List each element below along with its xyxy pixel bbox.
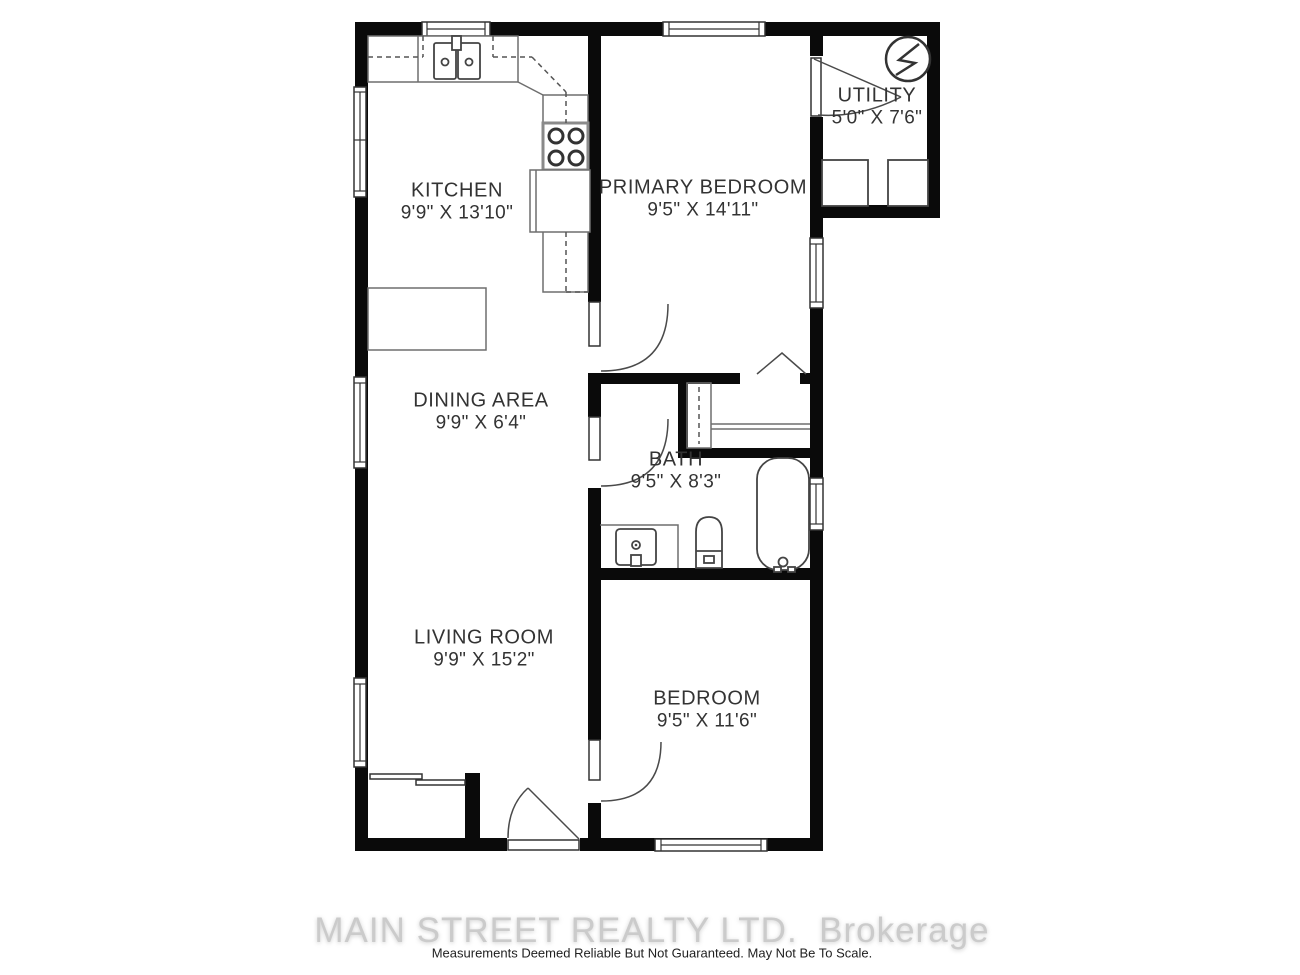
washer-icon: [822, 160, 868, 206]
bath-dims: 9'5" X 8'3": [631, 472, 722, 494]
primary-bedroom-dims: 9'5" X 14'11": [599, 200, 807, 222]
primary-bedroom-door: [588, 302, 668, 373]
front-door: [507, 788, 580, 851]
wall-right: [810, 22, 823, 851]
wall-primarybed-bath: [588, 373, 740, 384]
bath-name: BATH: [631, 449, 722, 472]
window-primary-bedroom-top: [663, 22, 765, 36]
dining-dims: 9'9" X 6'4": [413, 413, 549, 435]
entry-closet-sliding-door: [370, 774, 465, 785]
bedroom-name: BEDROOM: [653, 688, 761, 711]
window-dining-left: [354, 377, 366, 468]
primary-bedroom-name: PRIMARY BEDROOM: [599, 177, 807, 200]
utility-name: UTILITY: [832, 85, 923, 108]
living-room-label: LIVING ROOM 9'9" X 15'2": [414, 627, 554, 672]
bedroom-label: BEDROOM 9'5" X 11'6": [653, 688, 761, 733]
kitchen-peninsula: [368, 288, 486, 350]
living-room-dims: 9'9" X 15'2": [414, 650, 554, 672]
window-bedroom-bottom: [655, 839, 767, 851]
measurements-disclaimer: Measurements Deemed Reliable But Not Gua…: [432, 946, 873, 961]
bath-label: BATH 9'5" X 8'3": [631, 449, 722, 494]
walls: [355, 22, 940, 851]
kitchen-counter-corner: [518, 82, 543, 95]
kitchen-name: KITCHEN: [401, 180, 514, 203]
floor-plan-page: KITCHEN 9'9" X 13'10" PRIMARY BEDROOM 9'…: [0, 0, 1300, 975]
primary-bedroom-label: PRIMARY BEDROOM 9'5" X 14'11": [599, 177, 807, 222]
wall-closet-stub: [800, 373, 810, 384]
window-living-left: [354, 678, 366, 767]
primary-closet: [687, 383, 810, 448]
window-bath-right: [810, 478, 823, 530]
utility-label: UTILITY 5'0" X 7'6": [832, 85, 923, 130]
living-room-name: LIVING ROOM: [414, 627, 554, 650]
closet-bifold-door: [757, 353, 806, 374]
window-kitchen-top: [422, 22, 490, 36]
bathtub-icon: [757, 458, 809, 572]
stove-icon: [543, 123, 588, 170]
bathroom-sink-icon: [616, 529, 656, 566]
toilet-icon: [696, 517, 722, 568]
dining-name: DINING AREA: [413, 390, 549, 413]
dining-label: DINING AREA 9'9" X 6'4": [413, 390, 549, 435]
dryer-icon: [888, 160, 928, 206]
utility-dims: 5'0" X 7'6": [832, 108, 923, 130]
electrical-panel-icon: [886, 37, 930, 81]
kitchen-dims: 9'9" X 13'10": [401, 203, 514, 225]
wall-entry-closet-right: [465, 773, 480, 850]
bedroom-door: [588, 740, 661, 803]
wall-utility-bottom: [810, 205, 940, 218]
refrigerator-icon: [530, 170, 590, 232]
kitchen-label: KITCHEN 9'9" X 13'10": [401, 180, 514, 225]
bedroom-dims: 9'5" X 11'6": [653, 711, 761, 733]
window-primary-bedroom-right: [810, 238, 823, 308]
window-kitchen-left: [354, 87, 366, 197]
